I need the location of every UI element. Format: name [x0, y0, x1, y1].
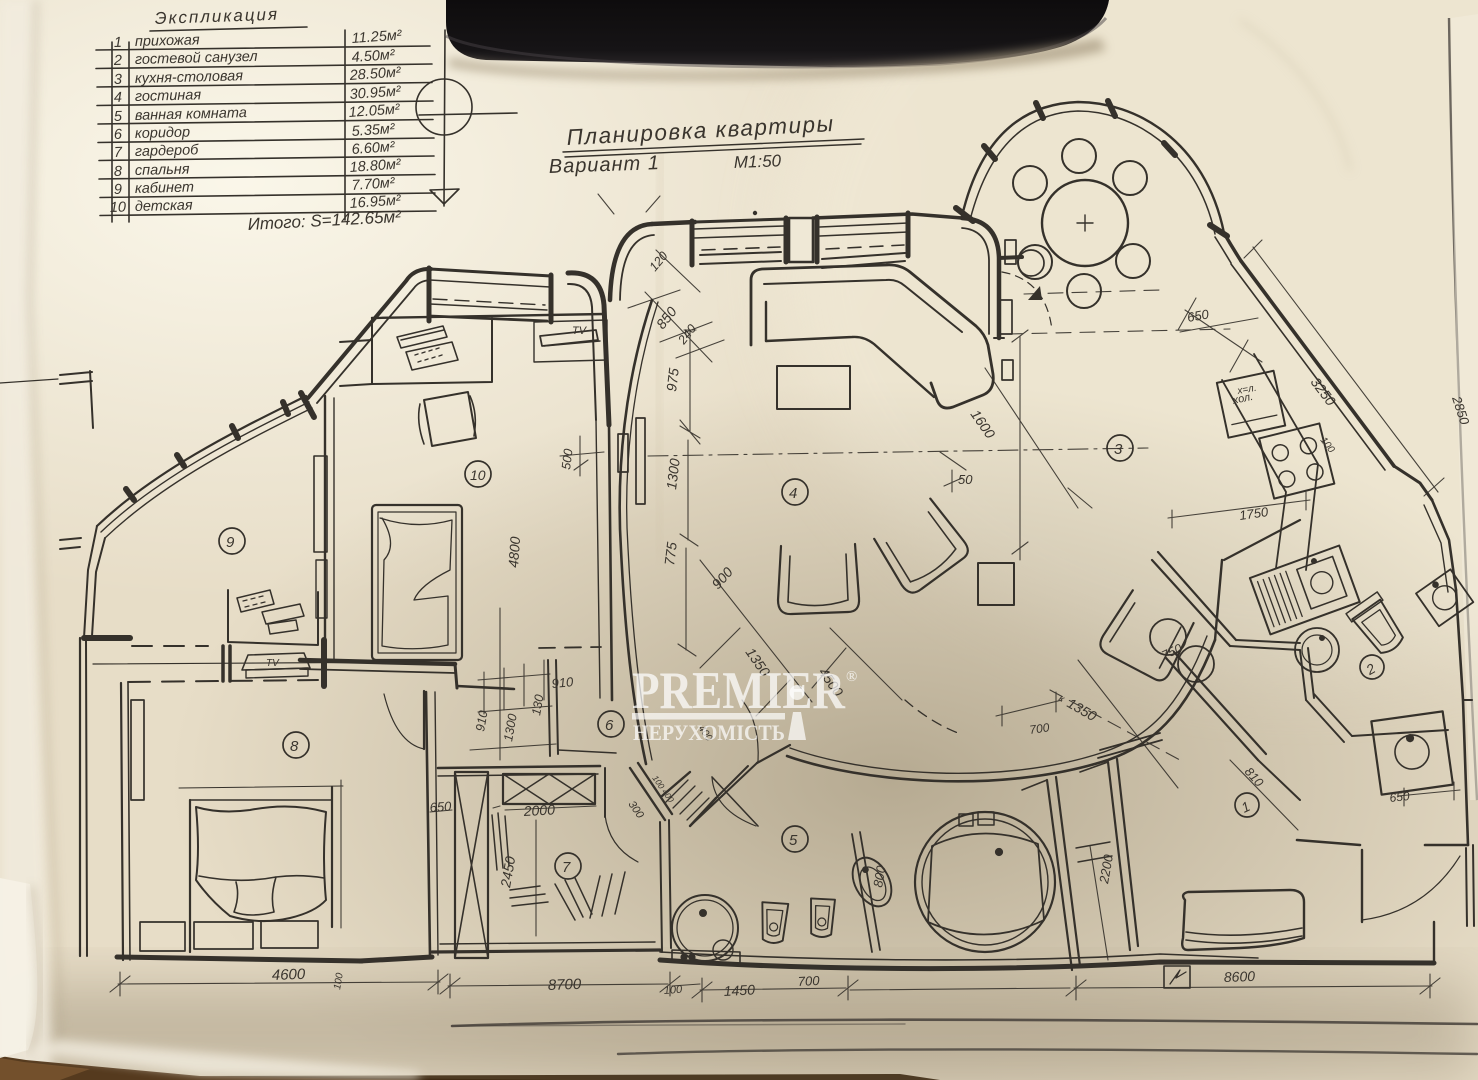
- svg-text:НЕРУХОМІСТЬ: НЕРУХОМІСТЬ: [633, 720, 785, 745]
- svg-text:9: 9: [226, 534, 235, 551]
- svg-text:910: 910: [551, 674, 575, 691]
- svg-text:1450: 1450: [723, 981, 755, 999]
- svg-text:4: 4: [114, 90, 122, 106]
- svg-text:700: 700: [1028, 720, 1050, 737]
- svg-text:кухня-столовая: кухня-столовая: [135, 68, 244, 87]
- svg-text:гостиная: гостиная: [135, 87, 202, 105]
- svg-text:9: 9: [114, 182, 122, 198]
- svg-text:700: 700: [797, 973, 820, 989]
- svg-text:3: 3: [1114, 441, 1123, 458]
- svg-text:4800: 4800: [505, 536, 523, 568]
- svg-text:гардероб: гардероб: [135, 142, 200, 160]
- svg-text:100: 100: [663, 984, 683, 997]
- svg-text:7.70м²: 7.70м²: [351, 175, 396, 194]
- svg-text:гостевой санузел: гостевой санузел: [135, 49, 258, 68]
- svg-text:4.50м²: 4.50м²: [351, 47, 396, 66]
- svg-text:8600: 8600: [1224, 968, 1256, 985]
- svg-text:50: 50: [958, 472, 973, 487]
- svg-text:5: 5: [789, 832, 798, 849]
- svg-text:10: 10: [470, 467, 486, 483]
- svg-text:ванная комната: ванная комната: [135, 105, 247, 124]
- svg-text:5: 5: [114, 109, 123, 125]
- svg-text:8: 8: [290, 738, 299, 755]
- svg-text:6: 6: [605, 717, 614, 734]
- svg-text:6: 6: [114, 127, 123, 143]
- svg-text:коридор: коридор: [135, 125, 191, 142]
- svg-text:2000: 2000: [522, 801, 555, 819]
- svg-text:TV: TV: [266, 658, 280, 669]
- svg-text:4600: 4600: [272, 966, 307, 984]
- svg-text:500: 500: [559, 448, 575, 470]
- svg-text:1: 1: [114, 35, 122, 51]
- svg-text:650: 650: [1389, 789, 1411, 805]
- svg-text:7: 7: [562, 859, 571, 876]
- svg-text:PREMIER: PREMIER: [632, 662, 846, 720]
- svg-text:Вариант 1: Вариант 1: [548, 152, 660, 178]
- svg-text:5.35м²: 5.35м²: [351, 121, 396, 140]
- svg-text:8700: 8700: [548, 976, 583, 994]
- svg-text:М1:50: М1:50: [733, 151, 781, 172]
- svg-text:®: ®: [846, 669, 857, 685]
- svg-text:прихожая: прихожая: [135, 32, 200, 50]
- svg-text:775: 775: [661, 541, 680, 566]
- svg-text:8: 8: [114, 164, 122, 180]
- svg-text:детская: детская: [135, 197, 193, 215]
- svg-text:6.60м²: 6.60м²: [351, 139, 396, 158]
- svg-text:2: 2: [113, 53, 122, 69]
- svg-text:3: 3: [114, 72, 122, 88]
- svg-text:4: 4: [789, 485, 797, 502]
- svg-text:10: 10: [110, 200, 127, 216]
- svg-text:кабинет: кабинет: [135, 179, 194, 197]
- svg-text:975: 975: [663, 367, 682, 392]
- svg-text:650: 650: [429, 798, 452, 815]
- svg-text:7: 7: [114, 145, 123, 161]
- svg-text:спальня: спальня: [135, 162, 190, 179]
- svg-text:TV: TV: [572, 325, 588, 337]
